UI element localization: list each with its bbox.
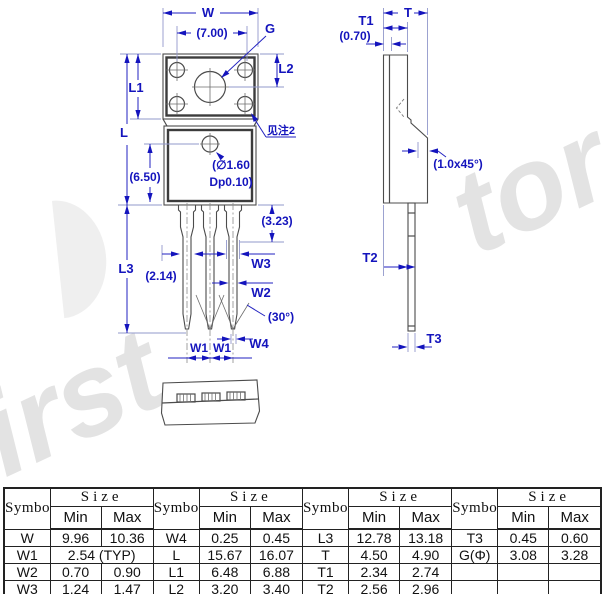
cell-symbol: T2 <box>302 581 348 594</box>
cell-symbol: L3 <box>302 529 348 547</box>
mechanical-drawing: W (7.00) G L1 L2 见注2 L (6.50) (∅1.60 Dp0… <box>0 0 606 486</box>
cell-min: 2.34 <box>349 564 400 581</box>
cell-symbol: T1 <box>302 564 348 581</box>
bottom-view <box>162 380 260 425</box>
col-header-min-1: Min <box>50 507 101 530</box>
cell-min: 0.70 <box>50 564 101 581</box>
dim-label-7-00: (7.00) <box>196 26 227 40</box>
cell-max: 0.45 <box>250 529 302 547</box>
cell-min: 3.08 <box>498 547 549 564</box>
dim-label-t2: T2 <box>362 250 377 265</box>
cell-max: 13.18 <box>400 529 452 547</box>
col-header-min-4: Min <box>498 507 549 530</box>
table-row: W2 0.70 0.90 L1 6.48 6.88 T1 2.34 2.74 <box>4 564 601 581</box>
cell-min: 1.24 <box>50 581 101 594</box>
cell-symbol: G(Φ) <box>452 547 498 564</box>
cell-min: 0.45 <box>498 529 549 547</box>
cell-max: 10.36 <box>101 529 153 547</box>
dim-label-0-70: (0.70) <box>339 29 370 43</box>
cell-min: 4.50 <box>349 547 400 564</box>
hole-spec-note-line1: (∅1.60 <box>212 158 250 172</box>
cell-symbol: W1 <box>4 547 50 564</box>
col-header-max-1: Max <box>101 507 153 530</box>
dim-label-g: G <box>265 21 275 36</box>
dim-label-w: W <box>202 5 215 20</box>
cell-symbol: L2 <box>153 581 199 594</box>
dim-label-l3: L3 <box>118 261 133 276</box>
dimension-table: Symbol Size Symbol Size Symbol Size Symb… <box>3 487 602 594</box>
front-view: W (7.00) G L1 L2 见注2 L (6.50) (∅1.60 Dp0… <box>118 5 296 363</box>
cell-symbol: W4 <box>153 529 199 547</box>
cell-symbol: W2 <box>4 564 50 581</box>
cell-min <box>498 564 549 581</box>
cell-typ-value: 2.54 (TYP) <box>50 547 153 564</box>
col-header-size-1: Size <box>50 488 153 507</box>
col-header-max-2: Max <box>250 507 302 530</box>
dim-label-l1: L1 <box>128 80 143 95</box>
cell-max: 6.88 <box>250 564 302 581</box>
col-header-min-3: Min <box>349 507 400 530</box>
col-header-symbol-3: Symbol <box>302 488 348 529</box>
cell-symbol: L <box>153 547 199 564</box>
dim-label-w4: W4 <box>249 336 269 351</box>
note-see-note-2: 见注2 <box>267 123 295 137</box>
dim-label-t1: T1 <box>358 13 373 28</box>
cell-max: 3.28 <box>549 547 601 564</box>
cell-symbol: L1 <box>153 564 199 581</box>
cell-symbol: W3 <box>4 581 50 594</box>
side-view: T T1 (0.70) (1.0x45°) T2 T3 <box>339 5 482 352</box>
cell-symbol: T3 <box>452 529 498 547</box>
col-header-size-4: Size <box>498 488 601 507</box>
dim-label-t: T <box>404 5 412 20</box>
cell-max: 4.90 <box>400 547 452 564</box>
table-row: W3 1.24 1.47 L2 3.20 3.40 T2 2.56 2.96 <box>4 581 601 594</box>
cell-max: 3.40 <box>250 581 302 594</box>
cell-symbol <box>452 581 498 594</box>
dim-label-w3: W3 <box>251 256 271 271</box>
table-row: W1 2.54 (TYP) L 15.67 16.07 T 4.50 4.90 … <box>4 547 601 564</box>
cell-min: 9.96 <box>50 529 101 547</box>
col-header-symbol-1: Symbol <box>4 488 50 529</box>
cell-min: 3.20 <box>199 581 250 594</box>
table-row: W 9.96 10.36 W4 0.25 0.45 L3 12.78 13.18… <box>4 529 601 547</box>
col-header-size-3: Size <box>349 488 452 507</box>
dim-label-w1-a: W1 <box>190 341 208 355</box>
dim-label-30-deg: (30°) <box>268 310 294 324</box>
col-header-max-4: Max <box>549 507 601 530</box>
cell-min: 15.67 <box>199 547 250 564</box>
cell-max: 2.96 <box>400 581 452 594</box>
col-header-size-2: Size <box>199 488 302 507</box>
dim-label-3-23: (3.23) <box>261 214 292 228</box>
cell-max <box>549 564 601 581</box>
cell-max: 16.07 <box>250 547 302 564</box>
dim-label-l2: L2 <box>278 61 293 76</box>
cell-max: 2.74 <box>400 564 452 581</box>
cell-min: 2.56 <box>349 581 400 594</box>
dim-label-t3: T3 <box>426 331 441 346</box>
cell-symbol: T <box>302 547 348 564</box>
cell-symbol: W <box>4 529 50 547</box>
dim-label-w2: W2 <box>251 285 271 300</box>
col-header-symbol-4: Symbol <box>452 488 498 529</box>
col-header-max-3: Max <box>400 507 452 530</box>
dim-label-l: L <box>120 125 128 140</box>
dim-label-w1-b: W1 <box>213 341 231 355</box>
hole-spec-note-line2: Dp0.10) <box>209 175 252 189</box>
cell-max <box>549 581 601 594</box>
dim-label-chamfer: (1.0x45°) <box>433 157 483 171</box>
col-header-symbol-2: Symbol <box>153 488 199 529</box>
cell-max: 0.60 <box>549 529 601 547</box>
cell-min: 12.78 <box>349 529 400 547</box>
col-header-min-2: Min <box>199 507 250 530</box>
cell-max: 0.90 <box>101 564 153 581</box>
dim-label-6-50: (6.50) <box>129 170 160 184</box>
cell-min: 6.48 <box>199 564 250 581</box>
dim-label-2-14: (2.14) <box>145 269 176 283</box>
cell-max: 1.47 <box>101 581 153 594</box>
cell-min <box>498 581 549 594</box>
package-outline-page: first tor <box>0 0 606 594</box>
cell-min: 0.25 <box>199 529 250 547</box>
cell-symbol <box>452 564 498 581</box>
